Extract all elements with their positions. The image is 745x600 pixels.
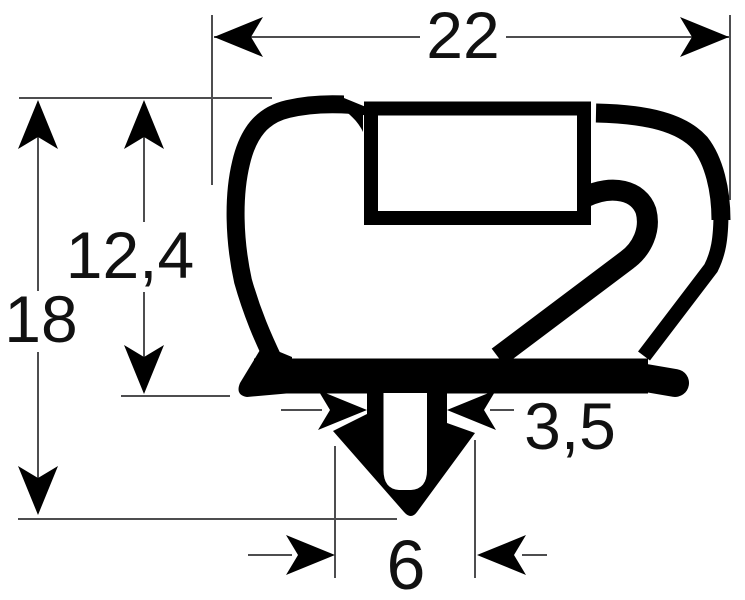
svg-text:3,5: 3,5 — [524, 389, 616, 463]
svg-text:18: 18 — [4, 282, 77, 356]
svg-text:22: 22 — [426, 0, 499, 72]
svg-text:6: 6 — [387, 526, 426, 600]
svg-text:12,4: 12,4 — [66, 218, 194, 292]
